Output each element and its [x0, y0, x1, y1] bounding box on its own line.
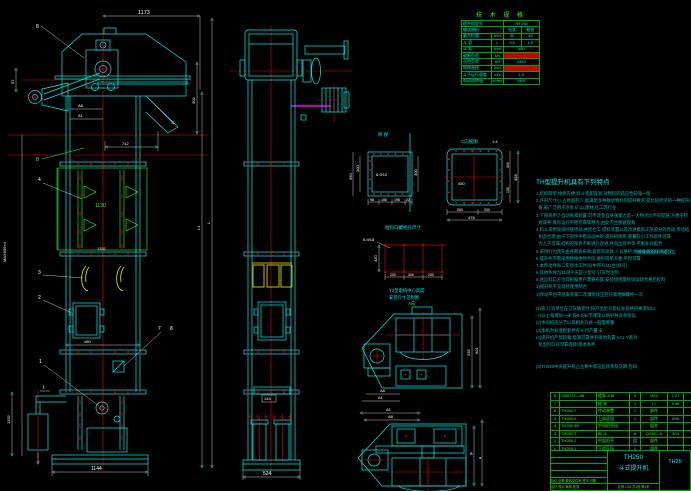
dim: 450 [458, 181, 465, 186]
note-line: 9.进出料口方位可根据用户需要布置,安装使用需经试运转合格后投料 [536, 276, 691, 283]
dim: 478 [468, 215, 475, 220]
bom-cell-material: 组合 [641, 423, 668, 430]
bom-cell-note [684, 408, 691, 415]
bom-cell-material: 部件 [641, 438, 668, 445]
spec-table-title: 技 术 规 格 [461, 10, 541, 19]
dim: A8 [388, 414, 394, 419]
discharge-chute [146, 96, 178, 133]
dim-302: 302 [191, 97, 196, 104]
balloon-2: 2 [38, 295, 41, 301]
dim: 22 [406, 198, 410, 202]
bom-cell-code: TH250.2 [560, 438, 597, 445]
notes-block: TH型提升机具有下列特点 1.结构简单,维修方便,料斗装卸容易,对物料的适应性较… [536, 176, 691, 370]
balloon-7: 7 [158, 326, 161, 332]
feed-chute [36, 396, 66, 414]
dim-a1: A1 [78, 113, 84, 118]
bom-cell-qty: 1 [630, 401, 641, 408]
dim: 198 [394, 198, 400, 202]
drawing-number: TH25 [660, 459, 690, 465]
bom-row: 5 TH250.6 上部区段 1 部件 635 [551, 416, 691, 424]
section-left-label: 俯 视 [378, 131, 389, 138]
title-block-drawing-no: TH25 [660, 451, 690, 490]
note-line [536, 355, 691, 362]
bom-cell-no: 5 [551, 416, 560, 423]
dim-a8: A8 [78, 103, 84, 108]
bom-cell-name: 中间机壳段 [597, 423, 630, 430]
bom-cell-code: GB8727—88 [560, 393, 597, 400]
motor-note-line2: 安装尺寸见附图 [389, 295, 424, 302]
note-line: (4)提升机严禁超载,电源可靠并有接地装置 ACL Y系列 [536, 334, 691, 341]
product-name: 斗式提升机 [608, 463, 659, 483]
front-view: 1173 52 A8 A1 302 712 8 B 4 3 2 1 7 8 I … [2, 10, 212, 476]
bom-cell-code [560, 401, 597, 408]
model-number: TH250 [608, 454, 659, 461]
bom-cell-qty: 4 [630, 393, 641, 400]
dim: A1 [386, 407, 392, 412]
bom-row: 3 TH250.3 料 斗 N Q235—A 204 [551, 431, 691, 439]
drive-detail-b: A1 A8 B a [358, 407, 482, 491]
casing-walls [248, 80, 295, 460]
note-line [536, 348, 691, 355]
note-line: 及出料口有可靠连接/基本条件 [536, 341, 691, 348]
dim: 98 [370, 198, 374, 202]
dim-144: 144 [264, 396, 271, 401]
scale-row: 比例 1:25 共1张 第1张 [608, 483, 659, 490]
bom-cell-weight: 635 [668, 416, 684, 423]
sign-row-labels: 标记 处数 更改文件号 签字 日期 [551, 478, 607, 485]
title-block: 标记 处数 更改文件号 签字 日期 设计 校对 审核 批准 TH250 斗式提升… [550, 450, 691, 491]
dim-l: L [206, 221, 211, 224]
bom-cell-weight [668, 423, 684, 430]
spec-table: 技 术 规 格 提升机型号TH 250 输送物料粒状粉状 最大粒度mm3048 … [461, 10, 541, 85]
note-line: 备,被广泛用于冶金,矿山,建材,化工等行业 [536, 204, 691, 211]
title-block-main: TH250 斗式提升机 比例 1:25 共1张 第1张 [608, 451, 660, 490]
dim: 200 [428, 273, 434, 277]
inspection-door [258, 302, 286, 340]
bom-cell-name: 料 斗 [597, 431, 630, 438]
note-line: 2.外形尺寸小,占地面积少,能满足多种散状物料的提升要求,是比较经济的一种提升设 [536, 197, 691, 204]
dim: 200 [484, 208, 490, 212]
note-line: 1)提升机不宜斜装使用场合 [536, 283, 691, 290]
dim-712: 712 [122, 141, 129, 146]
note-line: (1)表.订货单位在订货确定时,按产品型号及标准规格的要求加以, [536, 305, 691, 312]
bom-cell-note [684, 416, 691, 423]
bom-row: 8 GB8727—88 链条 20B 4 M22 1.07 [551, 393, 691, 401]
bom-cell-note [684, 393, 691, 400]
bom-row: 6 TH250.7 传动装置 1 部件 [551, 408, 691, 416]
spec-grid: 提升机型号TH 250 输送物料粒状粉状 最大粒度mm3048 斗 容L3.01… [461, 20, 540, 85]
bom-cell-weight: 204 [668, 431, 684, 438]
bom-cell-qty: N [630, 431, 641, 438]
bom-cell-note [684, 401, 691, 408]
bom-cell-weight: 9.06 [668, 401, 684, 408]
title-block-sign-grid: 标记 处数 更改文件号 签字 日期 设计 校对 审核 批准 [551, 451, 608, 490]
spec-unit: r/min [492, 78, 503, 84]
dim-max-height: MAX600×4 [2, 241, 7, 262]
dim: A8 [380, 388, 386, 393]
dim: 158 [381, 198, 387, 202]
drive-detail-a: A向 335 601 A8 A1 [362, 300, 480, 401]
dim-1332: 1332 [6, 414, 11, 424]
label-b: B [36, 157, 40, 163]
bom-cell-name: 中部机壳 [597, 438, 630, 445]
dim: 350 [348, 173, 353, 180]
note-line: 构造合理,由于下部件平稳运动中的,提升机体系,重量较小工作部件可靠 [536, 233, 691, 240]
bom-cell-name: 上部区段 [597, 416, 630, 423]
notes-title: TH型提升机具有下列特点 [536, 176, 691, 186]
dim: 300 [355, 165, 360, 172]
feed-opening-detail: 给料口螺栓孔尺寸 8-Φ18 420 200 300 200 [363, 224, 443, 280]
notes-lines: 1.结构简单,维修方便,料斗装卸容易,对物料的适应性较强一般2.外形尺寸小,占地… [536, 190, 691, 370]
balloon-4: 4 [38, 177, 41, 183]
bom-cell-qty: 1 [630, 408, 641, 415]
dim: B [470, 451, 473, 456]
dim: A1 [378, 395, 384, 400]
note-line: 3.下部采用了自动张紧装置,可不改变自身张紧力是一大特点比不同型链,方便于检 [536, 212, 691, 219]
dim: 150 [506, 187, 510, 193]
note-line: (5)TH250中央提升机占主要中等这些改革及货期 告知. [536, 363, 691, 370]
bom-row: 4 TH250.4B 中间机壳段 组合 [551, 423, 691, 431]
note-line: 8.其他条件为31道今天是小型号,订货时注明 [536, 269, 691, 276]
bom-cell-material: 部件 [641, 416, 668, 423]
label-mid-1332: 1332 [97, 246, 107, 251]
bom-cell-code: TH250.4B [560, 423, 597, 430]
bom-cell-code: TH250.6 [560, 416, 597, 423]
dim-1144: 1144 [91, 466, 102, 472]
bom-cell-material: M22 [641, 393, 668, 400]
dim: 260 [457, 208, 463, 212]
bom-cell-material: L= [641, 401, 668, 408]
notes-side-note: 特殊情况除外按订货 [637, 250, 676, 256]
note-line: (3)本机为标准配套件有 6 月产量 支 [536, 327, 691, 334]
bom-rows: 8 GB8727—88 链条 20B 4 M22 1.07 7 链 条 1 L=… [551, 393, 691, 453]
section-mark: I [43, 385, 44, 391]
note-line: 为之于可靠,结构的部件不断进行改进,并具出现中等,平衡补充配合 [536, 240, 691, 247]
spec-label: 电动机转速 [462, 78, 492, 84]
head-outline [62, 34, 186, 96]
balloon-8: 8 [36, 24, 39, 30]
dim-1173: 1173 [138, 10, 150, 16]
bom-cell-note [684, 423, 691, 430]
bom-cell-weight: 1.07 [668, 393, 684, 400]
balloon-1: 1 [39, 359, 42, 365]
inspection-door [73, 303, 100, 338]
section-left-hole-note: 8-Φ12 [376, 172, 388, 177]
dim-480: 480 [84, 339, 91, 344]
dim: 420 [373, 255, 378, 262]
bom-cell-name: 链 条 [597, 401, 630, 408]
dim: 300 [506, 162, 510, 168]
note-line: 4.料斗采用双排环链传动,并结合工.提料装置以及改进模具工序部分的传动,传动结 [536, 226, 691, 233]
bom-cell-no: 4 [551, 423, 560, 430]
sign-row-empty [551, 451, 607, 458]
bom-cell-name: 链条 20B [597, 393, 630, 400]
bom-cell-no: 2 [551, 438, 560, 445]
dim: 458 [513, 174, 518, 181]
dim: 300 [408, 273, 414, 277]
dim: 335 [466, 349, 471, 356]
dim: 300 [413, 169, 418, 176]
dim: 601 [474, 347, 479, 354]
section-view-left: 俯 视 8-Φ12 300 350 300 98 158 198 22 [348, 131, 418, 212]
bom-cell-note [684, 438, 691, 445]
dim-524: 524 [263, 471, 272, 477]
bom-cell-material: Q235—A [641, 431, 668, 438]
spec-value: 48.5 [503, 78, 539, 84]
bom-cell-no: 8 [551, 393, 560, 400]
sign-row-empty [551, 464, 607, 471]
note-line: 修保养,具有运行平稳可靠等特点,由此不生脱链现象 [536, 219, 691, 226]
bom-cell-weight [668, 408, 684, 415]
cad-drawing-canvas: 1173 52 A8 A1 302 712 8 B 4 3 2 1 7 8 I … [0, 0, 691, 491]
section-right-label: C向视图 [461, 138, 478, 145]
motor-note-line1: Y2型电机中心高度 [389, 288, 424, 295]
note-line: 1.结构简单,维修方便,料斗装卸容易,对物料的适应性较强一般 [536, 190, 691, 197]
bom-cell-no: 3 [551, 431, 560, 438]
white-marker [301, 115, 306, 120]
dim-1130: 1130 [95, 203, 106, 209]
motor-note: Y2型电机中心高度 安装尺寸见附图 [389, 288, 424, 301]
bom-cell-qty: 组 [630, 438, 641, 445]
section-right-scale: 1:4 [492, 139, 498, 144]
dim-52: 52 [10, 79, 15, 84]
bom-row: 2 TH250.2 中部机壳 组 部件 [551, 438, 691, 446]
buckets-yellow [252, 263, 292, 287]
feed-detail-title: 给料口螺栓孔尺寸 [385, 224, 421, 231]
bom-cell-name: 传动装置 [597, 408, 630, 415]
bom-cell-no: 7 [551, 401, 560, 408]
note-line [536, 298, 691, 305]
bom-cell-code: TH250.3 [560, 431, 597, 438]
balloon-3: 3 [38, 270, 41, 276]
dim: a [479, 455, 482, 460]
note-line: H以上每增加一米,按6.5米/节撑架以防护并多余架设. [536, 312, 691, 319]
bom-cell-code: TH250.7 [560, 408, 597, 415]
feed-hole-note: 8-Φ18 [363, 237, 375, 242]
dim: 200 [390, 273, 396, 277]
bom-cell-material: 部件 [641, 408, 668, 415]
bom-cell-weight [668, 438, 684, 445]
sign-row-empty [551, 458, 607, 465]
dim-l1: L1 [196, 225, 201, 230]
note-line: 1)传动平台平面安装第二次灌浆找正后拧紧地脚螺栓一次 [536, 291, 691, 298]
balloon-8b: 8 [170, 326, 173, 332]
sign-row-empty [551, 471, 607, 478]
side-view: 144 524 [230, 26, 352, 480]
sign-row-roles: 设计 校对 审核 批准 [551, 484, 607, 490]
bom-cell-note [684, 431, 691, 438]
bom-cell-qty [630, 423, 641, 430]
section-view-right: C向视图 1:4 450 260 200 478 300 150 458 [444, 138, 518, 220]
note-line: 7.本传动件每二年停水工时间(中带号)31台(样号) [536, 262, 691, 269]
middle-casing-green-section [57, 168, 147, 250]
note-line: (2)中间机壳分节以及相关方式一般需要量 [536, 319, 691, 326]
bom-row: 7 链 条 1 L= 9.06 [551, 401, 691, 409]
bom-cell-no: 6 [551, 408, 560, 415]
bom-cell-qty: 1 [630, 416, 641, 423]
